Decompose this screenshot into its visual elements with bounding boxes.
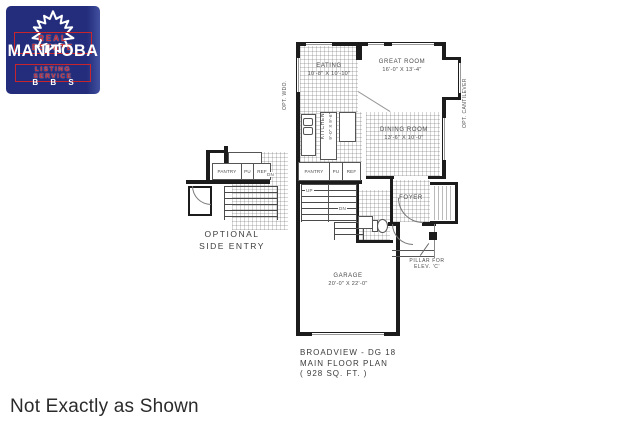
label-line: OPTIONAL bbox=[188, 228, 276, 240]
plan-title-block: BROADVIEW - DG 18 MAIN FLOOR PLAN ( 928 … bbox=[300, 348, 460, 380]
wall bbox=[206, 150, 210, 184]
ref-box: REF bbox=[342, 162, 361, 181]
kitchen-counter bbox=[339, 112, 356, 142]
wall bbox=[390, 178, 393, 226]
room-name: DINING ROOM bbox=[368, 126, 440, 134]
pantry-label: PANTRY bbox=[217, 169, 236, 174]
room-dims: 13'-6" X 10'-0" bbox=[368, 134, 440, 142]
plan-floor: MAIN FLOOR PLAN bbox=[300, 359, 460, 370]
mls-logo: REAL ESTATE MANITOBA LISTING SERVICE B B… bbox=[6, 6, 100, 94]
plan-name: BROADVIEW - DG 18 bbox=[300, 348, 460, 359]
dn-label: DN bbox=[266, 172, 275, 177]
pantry-box: PANTRY bbox=[298, 162, 330, 181]
wall bbox=[428, 176, 446, 179]
porch-step bbox=[392, 250, 434, 251]
room-dims: 9'-0" X 9'-6" bbox=[327, 103, 334, 149]
logo-bbs: B B S bbox=[6, 78, 100, 87]
room-name: GARAGE bbox=[300, 272, 396, 280]
dn-label: DN bbox=[338, 206, 347, 211]
great-room-label: GREAT ROOM 16'-0" X 13'-4" bbox=[362, 58, 442, 74]
logo-manitoba: MANITOBA bbox=[7, 42, 99, 61]
garage-door bbox=[312, 333, 384, 336]
window bbox=[306, 43, 332, 46]
pillar-note: PILLAR FOR ELEV. 'C' bbox=[398, 258, 456, 270]
dining-floor bbox=[366, 112, 440, 176]
window bbox=[392, 43, 434, 46]
optional-stairs bbox=[224, 186, 278, 220]
opt-window-note: OPT. WDO. bbox=[282, 80, 288, 110]
note-line: ELEV. 'C' bbox=[398, 264, 456, 270]
closet bbox=[434, 186, 454, 220]
wall bbox=[186, 180, 270, 184]
vanity bbox=[358, 216, 373, 229]
wall bbox=[206, 150, 226, 153]
porch-step bbox=[392, 256, 434, 257]
wall bbox=[455, 182, 458, 224]
pantry-label: PANTRY bbox=[304, 169, 323, 174]
label-line: SIDE ENTRY bbox=[188, 240, 276, 252]
wall bbox=[356, 240, 393, 243]
toilet-bowl bbox=[377, 219, 388, 233]
tile-edge bbox=[358, 91, 391, 112]
room-dims: 16'-0" X 13'-4" bbox=[362, 66, 442, 74]
kitchen-label: KITCHEN 9'-0" X 9'-6" bbox=[320, 103, 336, 149]
up-label: UP bbox=[305, 188, 314, 193]
pillar bbox=[429, 232, 437, 240]
plan-area: ( 928 SQ. FT. ) bbox=[300, 369, 460, 380]
room-name: EATING bbox=[300, 62, 358, 70]
wall bbox=[296, 184, 300, 336]
pantry-box: PANTRY bbox=[212, 163, 242, 180]
pu-box: PU bbox=[329, 162, 343, 181]
room-name: KITCHEN bbox=[320, 103, 327, 149]
listing-photo: REAL ESTATE MANITOBA LISTING SERVICE B B… bbox=[0, 0, 640, 427]
ref-label: REF bbox=[347, 169, 357, 174]
dining-room-label: DINING ROOM 13'-6" X 10'-0" bbox=[368, 126, 440, 142]
pu-label: PU bbox=[244, 169, 251, 174]
window bbox=[443, 118, 446, 160]
sink-basin bbox=[303, 118, 313, 126]
garage-label: GARAGE 20'-0" X 22'-0" bbox=[300, 272, 396, 288]
sink-basin bbox=[303, 127, 313, 135]
optional-side-entry-label: OPTIONAL SIDE ENTRY bbox=[188, 228, 276, 252]
porch-edge bbox=[434, 224, 435, 258]
disclaimer-text: Not Exactly as Shown bbox=[10, 396, 199, 418]
room-name: GREAT ROOM bbox=[362, 58, 442, 66]
eating-label: EATING 10'-8" X 10'-10" bbox=[300, 62, 358, 78]
room-dims: 20'-0" X 22'-0" bbox=[300, 280, 396, 288]
foyer-label: FOYER bbox=[394, 194, 428, 202]
stair-divider bbox=[328, 184, 329, 222]
room-name: FOYER bbox=[394, 194, 428, 202]
pu-label: PU bbox=[333, 169, 340, 174]
opt-cantilever-note: OPT. CANTILEVER bbox=[462, 78, 468, 128]
wall bbox=[430, 182, 458, 185]
window bbox=[368, 43, 384, 46]
room-dims: 10'-8" X 10'-10" bbox=[300, 70, 358, 78]
